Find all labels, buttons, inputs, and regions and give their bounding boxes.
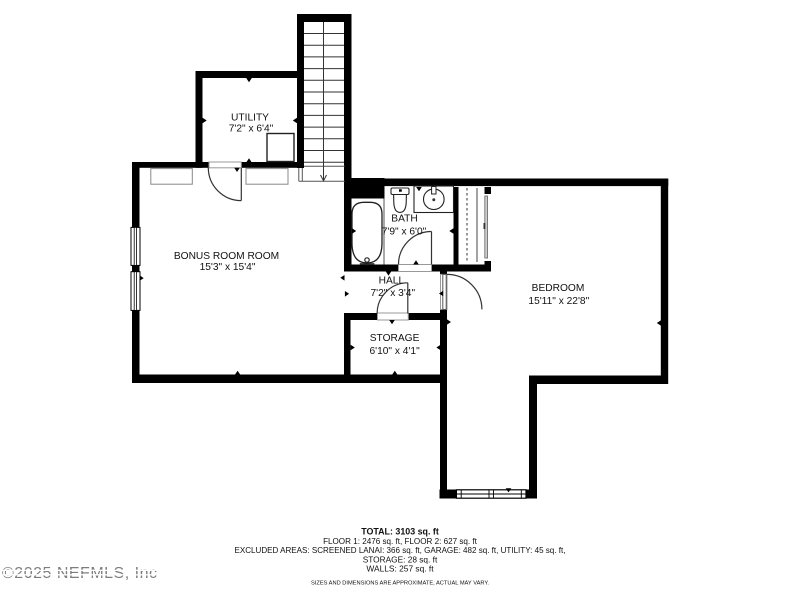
svg-text:15'11" x 22'8": 15'11" x 22'8"	[528, 296, 589, 307]
svg-text:HALL: HALL	[379, 276, 405, 287]
svg-text:TOTAL: 3103 sq. ft: TOTAL: 3103 sq. ft	[361, 527, 439, 537]
svg-text:BONUS ROOM ROOM: BONUS ROOM ROOM	[174, 251, 279, 262]
svg-text:7'2" x 3'4": 7'2" x 3'4"	[371, 288, 416, 299]
svg-text:6'10" x 4'1": 6'10" x 4'1"	[369, 346, 420, 357]
svg-text:©2025 NEFMLS, Inc: ©2025 NEFMLS, Inc	[2, 565, 157, 582]
svg-text:7'2" x 6'4": 7'2" x 6'4"	[229, 123, 274, 134]
svg-text:SIZES AND DIMENSIONS ARE APPRO: SIZES AND DIMENSIONS ARE APPROXIMATE, AC…	[311, 580, 489, 586]
svg-text:BATH: BATH	[391, 213, 417, 224]
svg-text:7'9" x 6'0": 7'9" x 6'0"	[382, 226, 427, 237]
svg-text:15'3" x 15'4": 15'3" x 15'4"	[200, 262, 256, 273]
svg-text:WALLS: 257 sq. ft: WALLS: 257 sq. ft	[366, 563, 434, 573]
svg-text:BEDROOM: BEDROOM	[532, 283, 585, 294]
svg-text:UTILITY: UTILITY	[231, 112, 269, 123]
svg-text:FLOOR 1: 2476 sq. ft, FLOOR 2:: FLOOR 1: 2476 sq. ft, FLOOR 2: 627 sq. f…	[323, 537, 478, 546]
svg-text:STORAGE: STORAGE	[370, 333, 420, 344]
